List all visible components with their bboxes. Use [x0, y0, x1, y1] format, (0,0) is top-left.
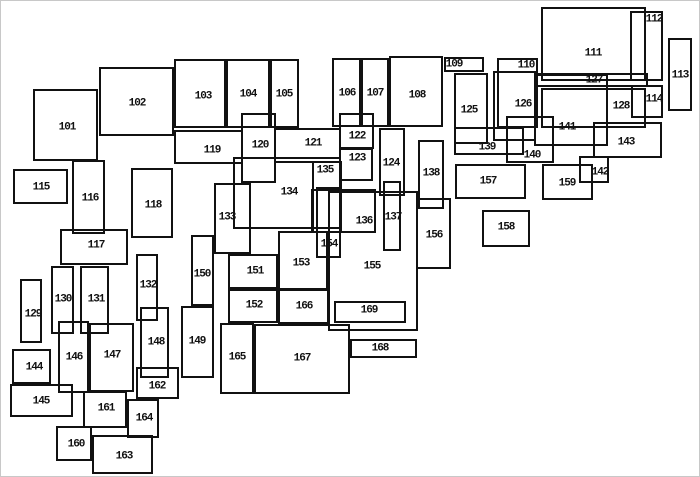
map-box-label-107: 107 [367, 89, 384, 100]
map-box-label-163: 163 [116, 452, 133, 463]
map-box-label-169: 169 [361, 306, 378, 317]
map-box-label-132: 132 [140, 281, 157, 292]
map-box-label-122: 122 [349, 132, 366, 143]
map-box-label-144: 144 [26, 363, 43, 374]
map-box-label-149: 149 [189, 337, 206, 348]
map-box-label-130: 130 [55, 295, 72, 306]
map-box-label-147: 147 [104, 351, 121, 362]
map-box-label-145: 145 [33, 397, 50, 408]
map-box-label-119: 119 [204, 146, 221, 157]
map-box-label-156: 156 [426, 231, 443, 242]
map-box-label-134: 134 [281, 188, 298, 199]
map-box-label-126: 126 [515, 100, 532, 111]
map-box-label-114: 114 [646, 95, 663, 106]
map-box-label-164: 164 [136, 414, 153, 425]
map-box-label-152: 152 [246, 301, 263, 312]
map-box-label-125: 125 [461, 106, 478, 117]
map-box-label-161: 161 [98, 404, 115, 415]
map-box-label-138: 138 [423, 169, 440, 180]
map-box-label-166: 166 [296, 302, 313, 313]
map-box-label-108: 108 [409, 91, 426, 102]
map-box-label-121: 121 [305, 139, 322, 150]
map-box-label-155: 155 [364, 262, 381, 273]
map-box-label-143: 143 [618, 138, 635, 149]
map-box-label-123: 123 [349, 154, 366, 165]
map-box-label-165: 165 [229, 353, 246, 364]
map-box-label-101: 101 [59, 123, 76, 134]
map-box-label-116: 116 [82, 194, 99, 205]
map-box-label-120: 120 [252, 141, 269, 152]
map-box-label-109: 109 [446, 60, 463, 71]
map-box-label-135: 135 [317, 166, 334, 177]
map-box-label-103: 103 [195, 92, 212, 103]
map-box-label-110: 110 [518, 61, 535, 72]
map-box-label-129: 129 [25, 310, 42, 321]
map-box-label-102: 102 [129, 99, 146, 110]
map-box-label-118: 118 [145, 201, 162, 212]
map-box-label-115: 115 [33, 183, 50, 194]
map-box-label-124: 124 [383, 159, 400, 170]
map-box-label-148: 148 [148, 338, 165, 349]
map-box-label-160: 160 [68, 440, 85, 451]
map-box-label-117: 117 [88, 241, 105, 252]
index-map-figure: 1011021031041051061071081091101111121131… [0, 0, 700, 477]
map-box-label-112: 112 [646, 15, 663, 26]
map-box-label-142: 142 [592, 168, 609, 179]
map-box-label-140: 140 [524, 151, 541, 162]
map-box-label-139: 139 [479, 143, 496, 154]
map-box-label-157: 157 [480, 177, 497, 188]
map-box-label-141: 141 [559, 123, 576, 134]
map-box-label-150: 150 [194, 270, 211, 281]
map-box-label-105: 105 [276, 90, 293, 101]
map-box-label-111: 111 [585, 49, 602, 60]
map-box-label-153: 153 [293, 259, 310, 270]
map-box-label-151: 151 [247, 267, 264, 278]
map-box-label-158: 158 [498, 223, 515, 234]
map-box-label-167: 167 [294, 354, 311, 365]
map-box-label-168: 168 [372, 344, 389, 355]
map-box-label-162: 162 [149, 382, 166, 393]
map-box-label-146: 146 [66, 353, 83, 364]
map-box-label-104: 104 [240, 90, 257, 101]
map-box-label-159: 159 [559, 179, 576, 190]
map-box-label-113: 113 [672, 71, 689, 82]
map-box-label-128: 128 [613, 102, 630, 113]
map-box-label-131: 131 [88, 295, 105, 306]
map-box-label-106: 106 [339, 89, 356, 100]
